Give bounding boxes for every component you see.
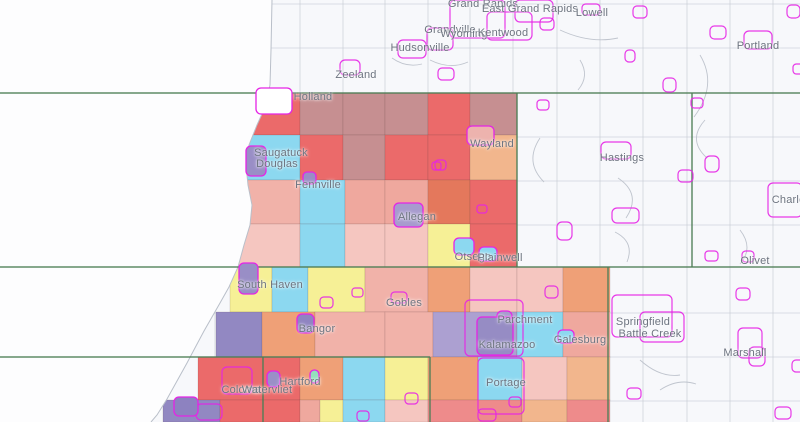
city-outline [710,26,726,39]
road-line [578,60,585,90]
tract-cell[interactable] [343,93,385,135]
city-outline [537,100,549,110]
tract-cell[interactable] [470,180,517,224]
tract-cell[interactable] [385,93,428,135]
city-marker[interactable] [454,238,474,255]
city-outline [787,5,800,18]
tract-cell[interactable] [517,312,563,357]
tract-cell[interactable] [320,400,343,422]
city-outline [612,208,639,223]
tract-cell[interactable] [315,312,385,357]
city-marker[interactable] [246,146,266,176]
city-outline [582,4,600,15]
road-line [640,360,680,375]
city-outline [663,78,676,92]
city-outline [742,251,754,262]
road-line [533,138,544,182]
city-marker[interactable] [297,314,314,333]
tract-cell[interactable] [428,357,478,400]
city-outline [705,156,719,172]
road-line [615,232,629,262]
city-marker[interactable] [303,172,316,184]
city-outline [450,0,505,38]
city-marker[interactable] [310,370,319,383]
road-line [430,60,468,66]
city-outline [398,40,426,58]
city-outline [738,328,762,358]
city-outline [487,12,532,40]
city-outline [627,388,641,399]
tract-cell[interactable] [470,267,517,312]
tract-cell[interactable] [428,267,470,312]
map-canvas[interactable] [0,0,800,422]
city-outline [705,251,718,261]
road-line [392,58,422,65]
tract-cell[interactable] [220,400,263,422]
map-viewport[interactable]: Grand RapidsEast Grand RapidsGrandvilleW… [0,0,800,422]
tract-cell[interactable] [300,93,343,135]
city-outline [612,295,672,337]
city-outline [793,64,800,74]
tract-cell[interactable] [428,135,470,180]
city-outline [515,0,553,22]
tract-cell[interactable] [478,357,522,400]
tract-cell[interactable] [345,224,385,267]
tract-cell[interactable] [300,357,343,400]
city-marker[interactable] [256,88,292,114]
city-marker[interactable] [479,247,497,261]
city-outline [427,28,453,50]
tract-cell[interactable] [563,267,610,312]
road-line [740,230,747,264]
city-marker[interactable] [477,317,513,355]
tract-cell[interactable] [567,357,610,400]
city-outline [625,50,635,62]
tract-cell[interactable] [343,135,385,180]
road-line [618,178,632,218]
tract-cell[interactable] [385,312,433,357]
city-marker[interactable] [394,203,423,227]
tract-cell[interactable] [345,180,385,224]
tract-cell[interactable] [300,180,345,224]
tract-cell[interactable] [428,400,522,422]
city-outline [678,170,693,182]
city-marker[interactable] [467,126,494,145]
tract-cell[interactable] [300,400,320,422]
tract-cell[interactable] [343,357,385,400]
tract-cell[interactable] [300,224,345,267]
tract-cell[interactable] [263,400,300,422]
city-marker[interactable] [174,397,198,416]
road-line [660,382,696,390]
city-outline [792,360,800,372]
tract-cell[interactable] [385,224,428,267]
tract-cell[interactable] [385,135,428,180]
road-line [560,30,618,40]
tract-cell[interactable] [308,267,365,312]
city-outline [601,142,631,159]
city-marker[interactable] [558,330,574,343]
tract-cell[interactable] [522,357,567,400]
tract-cell[interactable] [365,267,428,312]
tract-cell[interactable] [567,400,610,422]
city-outline [775,407,791,419]
tract-cell[interactable] [216,312,262,357]
city-outline [438,68,454,80]
tract-cell[interactable] [522,400,567,422]
tract-cell[interactable] [272,267,308,312]
tract-cell[interactable] [428,93,470,135]
city-outline [736,288,750,300]
tract-cell[interactable] [517,267,563,312]
road-line [696,120,707,158]
city-outline [744,31,772,49]
city-outline [633,6,647,18]
tract-cell[interactable] [428,180,470,224]
city-marker[interactable] [239,263,258,294]
city-marker[interactable] [267,371,280,387]
